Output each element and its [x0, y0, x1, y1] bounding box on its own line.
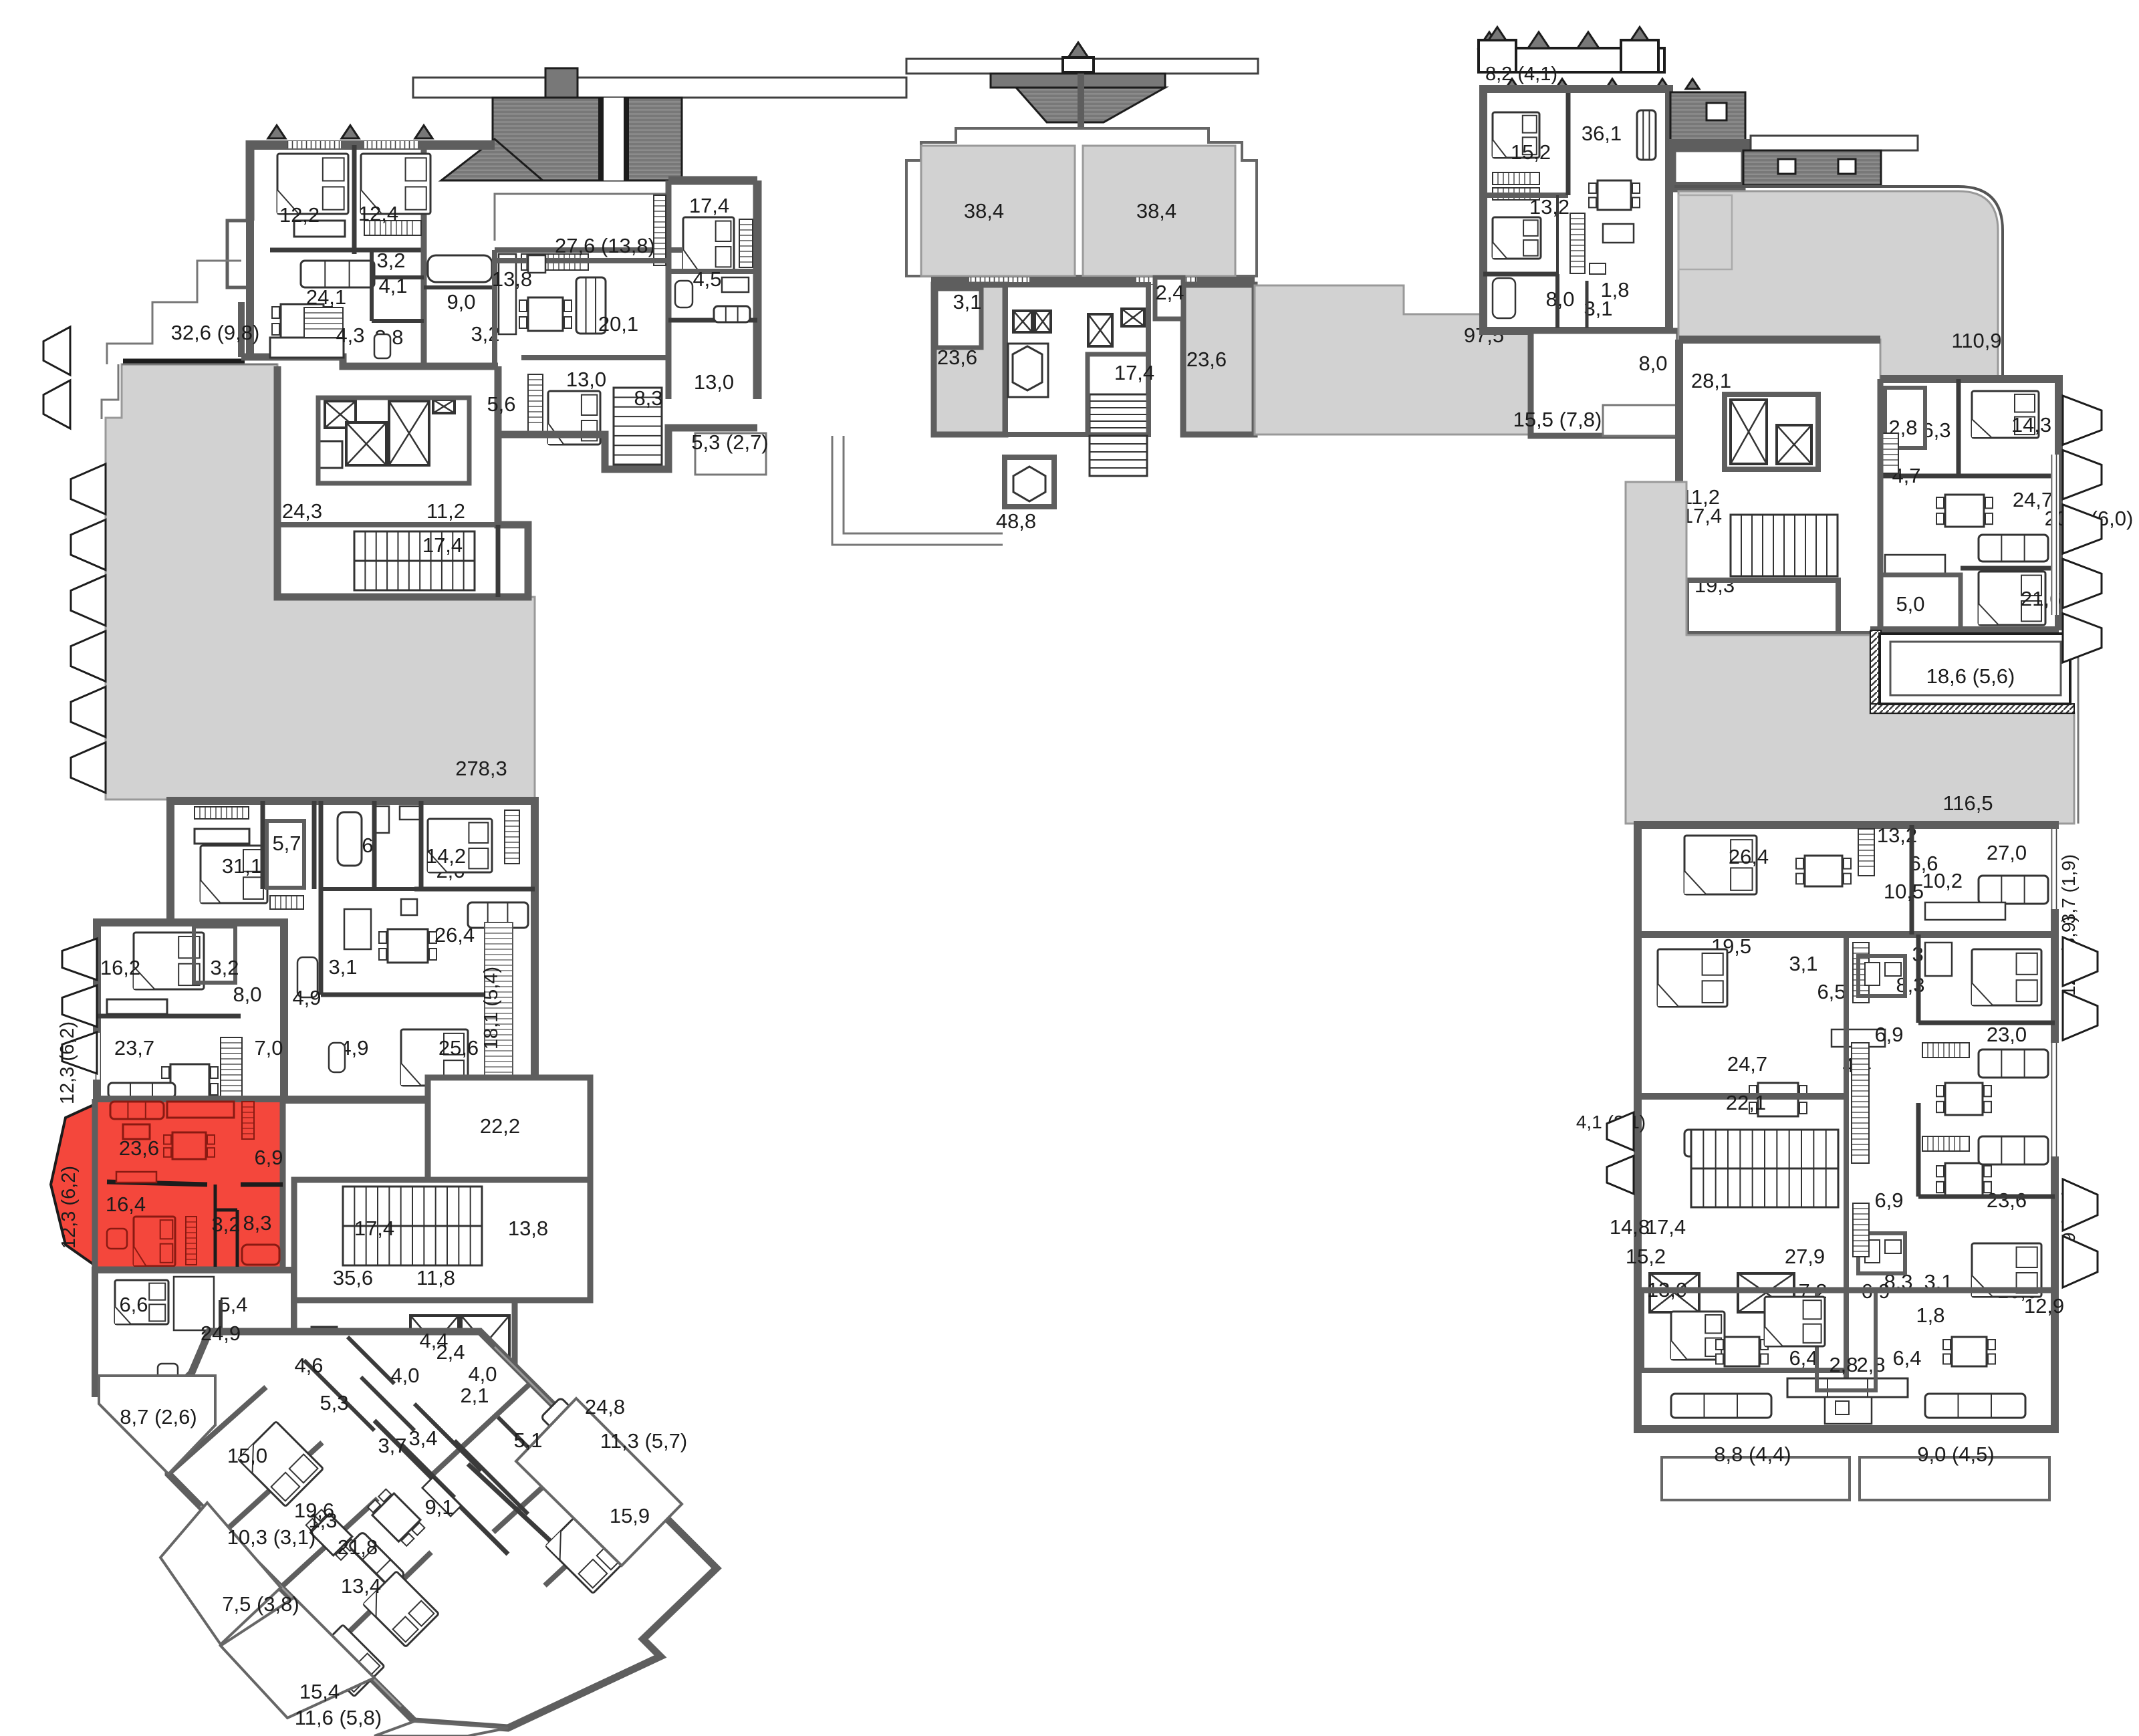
svg-text:22,2: 22,2: [480, 1114, 520, 1138]
svg-text:23,0: 23,0: [1987, 1023, 2027, 1046]
svg-text:13,2: 13,2: [1529, 195, 1569, 219]
svg-text:18,6 (5,6): 18,6 (5,6): [1926, 664, 2015, 688]
svg-text:278,3: 278,3: [455, 757, 507, 780]
svg-text:17,4: 17,4: [1114, 361, 1154, 384]
svg-text:17,4: 17,4: [354, 1217, 394, 1240]
svg-text:8,0: 8,0: [1545, 287, 1574, 311]
svg-text:15,2: 15,2: [1626, 1245, 1666, 1268]
svg-text:27,6 (13,8): 27,6 (13,8): [555, 234, 655, 257]
svg-text:17,4: 17,4: [689, 194, 729, 217]
svg-text:1,8: 1,8: [1600, 278, 1629, 301]
svg-text:28,1: 28,1: [1691, 369, 1731, 392]
svg-text:23,6: 23,6: [119, 1136, 159, 1160]
svg-text:7,5 (3,8): 7,5 (3,8): [222, 1592, 299, 1616]
svg-text:12,4: 12,4: [358, 202, 398, 225]
svg-text:16,2: 16,2: [100, 956, 140, 979]
svg-text:3,2: 3,2: [376, 249, 405, 272]
svg-text:14,3: 14,3: [2011, 413, 2051, 437]
svg-text:11,3 (5,7): 11,3 (5,7): [600, 1429, 687, 1453]
svg-text:12,9: 12,9: [2024, 1294, 2064, 1318]
svg-text:15,0: 15,0: [227, 1444, 267, 1467]
svg-text:11,2: 11,2: [426, 499, 465, 523]
svg-text:4,0: 4,0: [468, 1362, 497, 1386]
svg-text:10,5: 10,5: [1884, 880, 1924, 903]
svg-text:3,2: 3,2: [211, 1213, 240, 1236]
svg-text:14,8: 14,8: [1610, 1215, 1650, 1239]
svg-text:24,7: 24,7: [1727, 1052, 1767, 1076]
svg-text:15,5 (7,8): 15,5 (7,8): [1513, 408, 1602, 431]
svg-text:6,4: 6,4: [1892, 1346, 1921, 1370]
svg-text:2,4: 2,4: [436, 1340, 465, 1364]
svg-text:38,4: 38,4: [964, 199, 1004, 223]
svg-text:24,1: 24,1: [306, 285, 346, 309]
svg-text:10,3 (3,1): 10,3 (3,1): [227, 1525, 316, 1549]
svg-text:6,9: 6,9: [1874, 1189, 1903, 1212]
svg-text:4,9: 4,9: [292, 986, 321, 1009]
svg-text:15,9: 15,9: [610, 1504, 650, 1527]
svg-text:32,6 (9,8): 32,6 (9,8): [171, 321, 260, 344]
svg-text:35,6: 35,6: [333, 1266, 373, 1289]
svg-text:6,6: 6,6: [119, 1293, 148, 1316]
svg-text:9,0 (4,5): 9,0 (4,5): [1917, 1443, 1994, 1466]
svg-text:4,5: 4,5: [693, 267, 721, 291]
svg-text:13,8: 13,8: [508, 1217, 548, 1240]
svg-text:5,7: 5,7: [272, 832, 301, 855]
svg-text:3,1: 3,1: [1789, 952, 1817, 975]
svg-text:27,0: 27,0: [1987, 841, 2027, 864]
svg-text:12,2: 12,2: [279, 203, 320, 227]
svg-text:5,3 (2,7): 5,3 (2,7): [691, 430, 768, 454]
svg-text:5,6: 5,6: [487, 392, 515, 416]
svg-text:38,4: 38,4: [1136, 199, 1176, 223]
svg-text:4,1: 4,1: [378, 274, 407, 297]
svg-text:1,3: 1,3: [308, 1509, 337, 1532]
svg-text:19,3: 19,3: [1694, 574, 1735, 597]
svg-text:5,0: 5,0: [1896, 592, 1924, 616]
svg-text:3,7: 3,7: [378, 1434, 406, 1457]
svg-text:3,7 (1,9): 3,7 (1,9): [2058, 854, 2079, 924]
svg-text:21,8: 21,8: [338, 1535, 378, 1559]
svg-text:6,9: 6,9: [254, 1146, 283, 1169]
svg-text:23,6: 23,6: [1186, 348, 1227, 371]
svg-text:10,2: 10,2: [1922, 869, 1963, 892]
svg-text:2,8: 2,8: [1829, 1353, 1858, 1376]
svg-text:12,3 (6,2): 12,3 (6,2): [58, 1166, 80, 1249]
svg-text:2,8: 2,8: [1856, 1353, 1885, 1376]
svg-text:13,8: 13,8: [492, 267, 532, 291]
svg-text:6,5: 6,5: [1817, 980, 1846, 1003]
svg-text:25,6: 25,6: [438, 1036, 479, 1060]
svg-text:3,4: 3,4: [408, 1427, 437, 1450]
svg-text:4,3: 4,3: [336, 324, 364, 347]
svg-text:16,4: 16,4: [106, 1193, 146, 1216]
svg-text:20,1: 20,1: [598, 312, 638, 336]
svg-text:14,2: 14,2: [426, 844, 466, 868]
svg-text:8,3: 8,3: [634, 386, 662, 410]
svg-text:24,8: 24,8: [585, 1395, 625, 1418]
svg-text:8,7 (2,6): 8,7 (2,6): [120, 1405, 197, 1429]
svg-text:12,3 (6,2): 12,3 (6,2): [57, 1021, 78, 1104]
svg-text:11,6 (5,8): 11,6 (5,8): [295, 1706, 382, 1729]
svg-text:116,5: 116,5: [1942, 791, 1993, 815]
svg-text:31,1: 31,1: [222, 854, 262, 878]
svg-text:110,9: 110,9: [1951, 329, 2001, 352]
svg-text:6,4: 6,4: [1789, 1346, 1817, 1370]
svg-text:3,1: 3,1: [328, 955, 357, 979]
svg-text:23,6: 23,6: [1987, 1189, 2027, 1212]
svg-text:36,1: 36,1: [1582, 122, 1622, 145]
svg-text:8,2 (4,1): 8,2 (4,1): [1485, 64, 1557, 85]
svg-text:4,6: 4,6: [294, 1354, 323, 1377]
svg-text:8,3: 8,3: [243, 1211, 271, 1235]
svg-text:13,0: 13,0: [694, 370, 734, 394]
svg-text:9,0: 9,0: [447, 290, 475, 314]
svg-text:17,4: 17,4: [1646, 1215, 1686, 1239]
svg-text:17,4: 17,4: [1682, 504, 1722, 527]
svg-text:3,2: 3,2: [210, 956, 239, 979]
svg-text:2,1: 2,1: [460, 1384, 489, 1407]
svg-text:1,8: 1,8: [1916, 1304, 1944, 1327]
svg-text:24,9: 24,9: [201, 1322, 241, 1345]
svg-text:27,9: 27,9: [1785, 1245, 1825, 1268]
svg-text:23,6: 23,6: [937, 346, 977, 369]
svg-text:18,1 (5,4): 18,1 (5,4): [481, 967, 502, 1049]
svg-text:2,4: 2,4: [1155, 281, 1184, 304]
svg-text:6,9: 6,9: [1874, 1023, 1903, 1046]
svg-text:17,4: 17,4: [422, 533, 463, 557]
svg-text:3,1: 3,1: [953, 290, 981, 314]
svg-text:7,0: 7,0: [254, 1036, 283, 1060]
svg-text:22,1: 22,1: [1726, 1091, 1766, 1114]
svg-text:5,3: 5,3: [320, 1391, 348, 1414]
svg-text:4,0: 4,0: [390, 1364, 419, 1387]
svg-text:48,8: 48,8: [996, 509, 1036, 533]
svg-text:8,8 (4,4): 8,8 (4,4): [1714, 1443, 1791, 1466]
svg-text:13,0: 13,0: [566, 368, 606, 391]
svg-text:15,2: 15,2: [1511, 140, 1551, 164]
svg-text:24,3: 24,3: [282, 499, 322, 523]
svg-text:11,8: 11,8: [416, 1266, 455, 1289]
svg-text:9,1: 9,1: [424, 1495, 453, 1519]
svg-text:5,1: 5,1: [513, 1429, 542, 1452]
svg-text:8,0: 8,0: [1638, 352, 1667, 375]
svg-text:5,4: 5,4: [219, 1293, 247, 1316]
svg-text:26,4: 26,4: [1729, 845, 1769, 868]
svg-text:23,7: 23,7: [114, 1036, 154, 1060]
svg-text:8,0: 8,0: [233, 983, 261, 1006]
svg-text:13,4: 13,4: [341, 1574, 381, 1598]
svg-text:15,4: 15,4: [299, 1680, 340, 1703]
